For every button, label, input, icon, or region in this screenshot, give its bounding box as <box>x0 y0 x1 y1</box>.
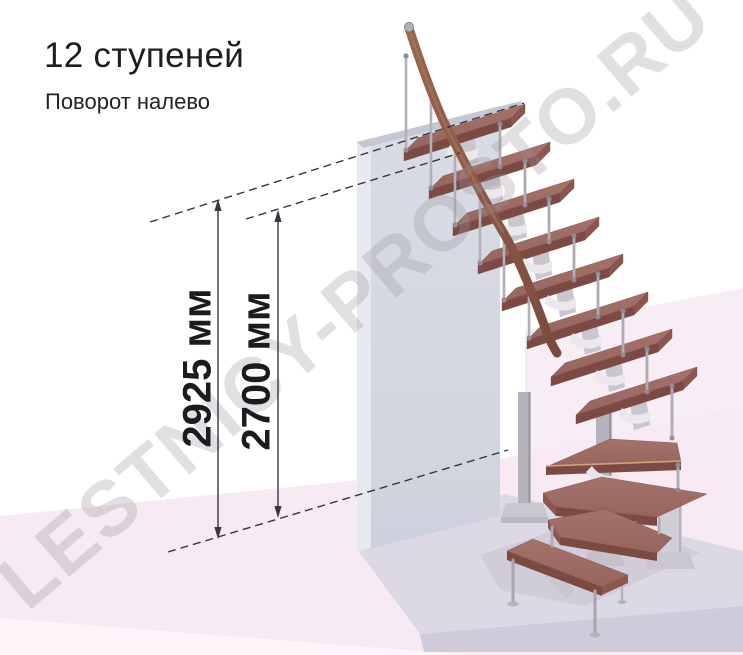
arrow-down-icon <box>214 527 221 539</box>
page-title: 12 ступеней <box>44 36 244 76</box>
extension-line-top-outer <box>150 103 524 222</box>
arrow-up-icon <box>274 210 281 222</box>
staircase-diagram-page: LESTNICY-PROSTO.RU 12 ступеней Поворот н… <box>0 0 743 655</box>
extension-line-top-inner <box>246 153 460 219</box>
page-subtitle: Поворот налево <box>45 89 210 115</box>
arrow-down-icon <box>274 506 281 518</box>
dimension-label-overall-height: 2925 мм <box>176 288 221 447</box>
extension-line-floor <box>168 450 508 552</box>
dimension-label-inner-height: 2700 мм <box>235 291 280 450</box>
